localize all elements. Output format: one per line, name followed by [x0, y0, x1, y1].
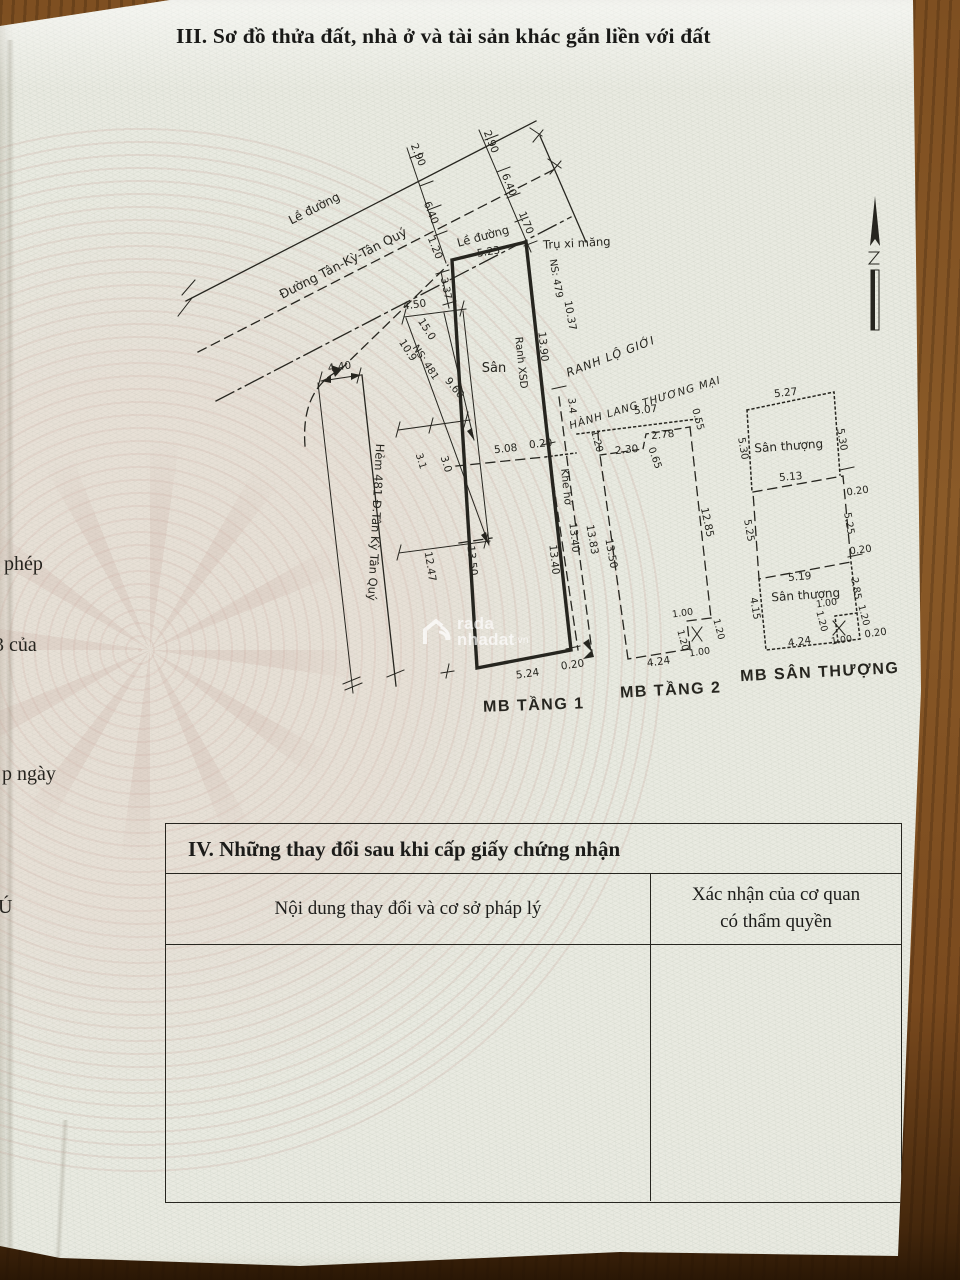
dim-label: 3.4 — [565, 397, 577, 414]
dim-label: 0.20 — [846, 485, 870, 499]
dim-label: 5.27 — [773, 386, 798, 400]
section-iv-body-row — [166, 945, 901, 1201]
radanhadat-logo-icon — [422, 617, 452, 647]
dim-label: 2.90 — [408, 142, 428, 168]
dim-label: Sân thượng — [754, 437, 824, 456]
empty-cell-confirmation — [651, 945, 901, 1201]
dim-label: 2.85 — [848, 577, 863, 601]
dim-label: 1.20 — [588, 429, 604, 453]
dim-label: 5.07 — [633, 403, 658, 417]
dim-label: Lề đường — [286, 190, 342, 228]
dim-label: 15.0 — [415, 316, 438, 342]
site-plan-diagram: Lề đườngĐường Tân-Kỳ-Tân Quý2.906.401.20… — [0, 0, 960, 790]
dim-label: Đường Tân-Kỳ-Tân Quý — [277, 224, 410, 302]
dim-label: 5.30 — [735, 437, 750, 461]
photographed-land-certificate: III. Sơ đồ thửa đất, nhà ở và tài sản kh… — [0, 0, 960, 1280]
dim-label: RANH LỘ GIỚI — [564, 332, 657, 380]
dim-label: 0.20 — [864, 627, 888, 641]
watermark-text: rada nhadat.vn — [457, 616, 529, 648]
dim-label: 4.15 — [747, 597, 762, 621]
dim-label: 0.20 — [849, 544, 873, 558]
dim-label: 5.13 — [779, 470, 803, 484]
dim-label: 1.00 — [688, 646, 710, 660]
dim-label: 2.30 — [614, 443, 639, 457]
section-iv-header-row: Nội dung thay đổi và cơ sở pháp lý Xác n… — [166, 874, 901, 945]
dim-label: 5.25 — [741, 519, 756, 543]
empty-cell-content — [166, 945, 651, 1201]
dim-label: 13.40 — [566, 522, 581, 553]
dim-label: 4.50 — [402, 297, 427, 312]
dim-label: Trụ xi măng — [542, 234, 611, 252]
column-header-confirmation: Xác nhận của cơ quan có thẩm quyền — [651, 874, 901, 944]
dim-label: 13.83 — [583, 524, 600, 556]
dim-label: Lề đường — [455, 222, 510, 249]
dim-label: 1.00 — [830, 634, 852, 648]
section-iv-table: IV. Những thay đổi sau khi cấp giấy chứn… — [165, 823, 902, 1203]
dim-label: 12.47 — [422, 551, 439, 583]
dim-label: 0.20 — [528, 437, 553, 451]
edge-text-fragment: Ú — [0, 896, 12, 919]
dim-label: MB TẦNG 2 — [620, 677, 722, 701]
dim-label: 1.00 — [815, 597, 837, 611]
road-lines — [178, 121, 586, 446]
certificate-page: III. Sơ đồ thửa đất, nhà ở và tài sản kh… — [0, 0, 960, 1280]
dim-label: 3.0 — [438, 454, 454, 473]
dim-label: 13.40 — [546, 544, 561, 575]
dim-label: 5.19 — [788, 570, 812, 584]
dim-label: 1.20 — [813, 610, 829, 633]
dim-label: 4.24 — [646, 654, 671, 669]
dim-label: 0.65 — [645, 446, 663, 471]
dim-label: 10.37 — [561, 300, 578, 332]
dim-label: MB SÂN THƯỢNG — [740, 658, 900, 685]
dim-label: Sân — [482, 361, 506, 376]
dim-label: 4.24 — [787, 634, 812, 649]
dim-label: 5.30 — [834, 428, 849, 452]
dim-label: 1.20 — [710, 618, 726, 641]
dim-label: 4.40 — [327, 359, 352, 374]
dim-label: Ranh XSD — [512, 336, 529, 389]
dim-label: 13.50 — [602, 538, 619, 570]
dim-label: 2.78 — [650, 428, 675, 442]
dim-label: 5.08 — [493, 442, 518, 456]
dim-label: 5.25 — [841, 512, 856, 536]
dim-label: 13.50 — [464, 545, 479, 576]
dim-label: MB TẦNG 1 — [483, 693, 585, 716]
watermark: rada nhadat.vn — [422, 616, 529, 648]
dim-label: Khe hở — [558, 468, 574, 506]
dim-label: 9.60 — [442, 375, 466, 401]
dim-label: 3.1 — [413, 452, 428, 470]
dim-label: 0.20 — [560, 657, 585, 672]
column-header-content: Nội dung thay đổi và cơ sở pháp lý — [166, 874, 651, 944]
dim-label: 6.40 — [421, 200, 441, 226]
dim-label: NS: 481 — [410, 343, 441, 382]
dim-label: 1.20 — [425, 235, 445, 261]
dim-label: 1.00 — [671, 607, 693, 621]
dim-label: 3.37 — [438, 276, 453, 300]
dim-label: 6.40 — [499, 172, 519, 198]
north-arrow-icon — [869, 196, 880, 330]
dim-label: 5.24 — [515, 666, 540, 681]
section-iv-title: IV. Những thay đổi sau khi cấp giấy chứn… — [166, 824, 901, 874]
dim-label: NS: 479 — [547, 258, 565, 299]
dimension-labels: Lề đườngĐường Tân-Kỳ-Tân Quý2.906.401.20… — [277, 129, 900, 716]
dim-label: 5.23 — [476, 244, 501, 260]
